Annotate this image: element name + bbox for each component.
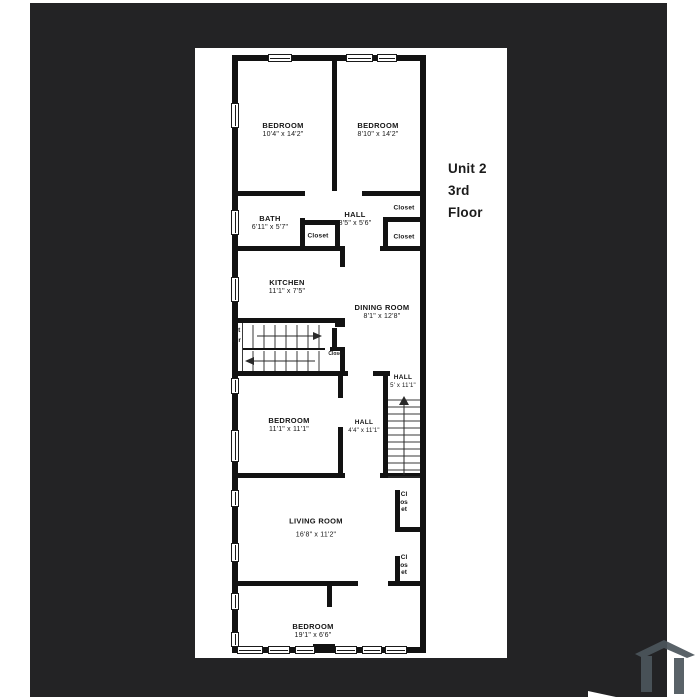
window <box>362 646 382 654</box>
stairs-upper-run <box>243 325 325 348</box>
wall <box>300 220 340 225</box>
room-label-living-room: LIVING ROOM 16'8" x 11'2" <box>289 517 343 540</box>
room-label-hall-stairs: HALL 5' x 11'1" <box>390 373 416 391</box>
page: BEDROOM 10'4" x 14'2" BEDROOM 8'10" x 14… <box>0 0 700 700</box>
room-dims: 16'8" x 11'2" <box>289 531 343 540</box>
room-name: HALL <box>390 373 416 382</box>
wall <box>420 55 426 653</box>
room-name: DINING ROOM <box>355 303 410 312</box>
stairs-right-hall <box>388 393 420 478</box>
floor-label: 3rd Floor <box>448 180 507 224</box>
window <box>268 54 292 62</box>
window <box>346 54 373 62</box>
room-label-bedroom-bottom: BEDROOM 19'1" x 6'6" <box>292 622 333 640</box>
room-label-bedroom-middle: BEDROOM 11'1" x 11'1" <box>268 416 309 434</box>
window <box>231 378 239 394</box>
closet-label-right-lower: Closet <box>393 234 414 241</box>
closet-label-right-upper: Closet <box>393 205 414 212</box>
room-dims: 11'1" x 11'1" <box>268 425 309 434</box>
room-dims: 8'1" x 12'8" <box>355 312 410 321</box>
window <box>385 646 407 654</box>
unit-floor-annotation: Unit 2 3rd Floor <box>448 158 507 224</box>
room-name: KITCHEN <box>269 278 305 287</box>
wall <box>338 376 343 398</box>
closet-label-living-upper: Closet <box>400 491 408 514</box>
closet-label-hall: Closet <box>307 233 328 240</box>
room-dims: 8'5" x 5'6" <box>339 219 372 228</box>
room-dims: 19'1" x 6'6" <box>292 631 333 640</box>
room-name: BATH <box>252 214 288 223</box>
wall <box>327 586 332 607</box>
wall <box>340 251 345 267</box>
wall <box>232 371 348 376</box>
window <box>377 54 397 62</box>
wall <box>383 217 425 222</box>
room-name: HALL <box>339 210 372 219</box>
room-dims: 10'4" x 14'2" <box>262 130 303 139</box>
window <box>231 430 239 462</box>
room-name: BEDROOM <box>268 416 309 425</box>
room-name: BEDROOM <box>292 622 333 631</box>
room-dims: 6'11" x 5'7" <box>252 223 288 232</box>
wall <box>313 644 335 653</box>
closet-label-stair: Closet <box>328 351 343 357</box>
wall <box>232 581 358 586</box>
closet-label-living-lower: Closet <box>400 554 408 577</box>
window <box>237 646 263 654</box>
window <box>231 210 239 235</box>
wall <box>232 318 345 323</box>
room-label-kitchen: KITCHEN 11'1" x 7'5" <box>269 278 305 296</box>
wall <box>232 55 238 653</box>
room-dims: 5' x 11'1" <box>390 382 416 391</box>
window <box>335 646 357 654</box>
wall <box>332 328 337 348</box>
right-arrow-icon <box>313 332 322 340</box>
room-name: BEDROOM <box>262 121 303 130</box>
window <box>231 103 239 128</box>
window <box>268 646 290 654</box>
stair-landing-line <box>243 348 325 350</box>
window <box>231 632 239 647</box>
stairs-lower-run <box>243 351 325 371</box>
wall <box>335 318 345 327</box>
wall <box>338 427 343 478</box>
house-logo-icon <box>615 622 700 700</box>
wall <box>383 222 388 251</box>
wall <box>232 191 305 196</box>
wall <box>232 246 345 251</box>
window <box>231 593 239 610</box>
window <box>231 543 239 562</box>
wall <box>362 191 420 196</box>
room-dims: 4'4" x 11'1" <box>348 427 380 436</box>
left-arrow-icon <box>245 357 254 365</box>
unit-label: Unit 2 <box>448 158 507 180</box>
window <box>231 490 239 507</box>
room-name: LIVING ROOM <box>289 517 343 526</box>
wall <box>395 527 425 532</box>
room-name: BEDROOM <box>357 121 398 130</box>
room-label-bedroom-top-left: BEDROOM 10'4" x 14'2" <box>262 121 303 139</box>
room-name: HALL <box>348 418 380 427</box>
room-label-hall-top: HALL 8'5" x 5'6" <box>339 210 372 228</box>
wall <box>232 473 345 478</box>
wall <box>388 581 420 586</box>
room-label-dining-room: DINING ROOM 8'1" x 12'8" <box>355 303 410 321</box>
room-dims: 11'1" x 7'5" <box>269 287 305 296</box>
floor-plan-image: BEDROOM 10'4" x 14'2" BEDROOM 8'10" x 14… <box>195 48 507 658</box>
room-label-bedroom-top-right: BEDROOM 8'10" x 14'2" <box>357 121 398 139</box>
room-label-hall-middle: HALL 4'4" x 11'1" <box>348 418 380 436</box>
stair-label: Stair <box>233 326 241 345</box>
room-label-bath: BATH 6'11" x 5'7" <box>252 214 288 232</box>
window <box>231 277 239 302</box>
window <box>295 646 315 654</box>
wall <box>332 60 337 191</box>
room-dims: 8'10" x 14'2" <box>357 130 398 139</box>
